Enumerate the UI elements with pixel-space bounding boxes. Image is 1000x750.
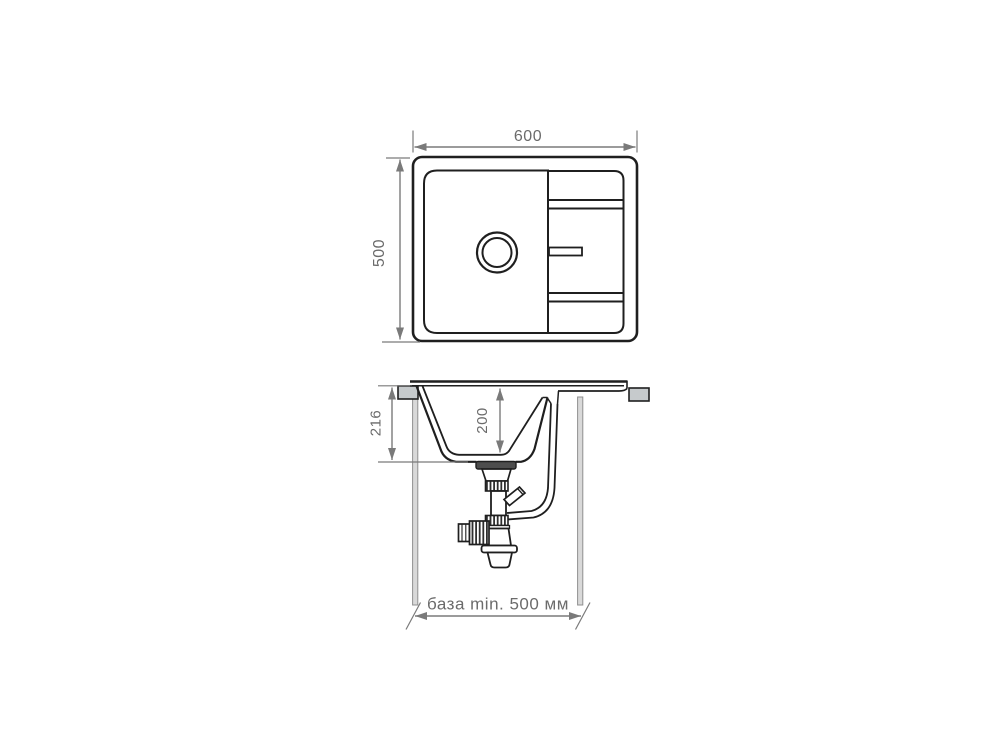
tailpipe xyxy=(491,491,506,516)
dim-cabinet-base: база min. 500 мм xyxy=(406,595,590,630)
dim-bowl-depth-label: 200 xyxy=(474,407,491,434)
outlet-nut xyxy=(470,521,490,545)
dim-depth-label: 500 xyxy=(371,239,388,267)
sink-rim xyxy=(410,381,627,392)
siphon-assembly xyxy=(459,462,526,568)
drawing-canvas: 600 500 xyxy=(0,0,1000,750)
outlet-pipe xyxy=(459,521,490,545)
dim-cabinet-base-label: база min. 500 мм xyxy=(427,595,569,614)
drainboard-channel-tab xyxy=(549,248,582,256)
drain-flange xyxy=(476,462,516,470)
strainer-body xyxy=(482,469,511,481)
cabinet-wall-left xyxy=(413,399,418,605)
dim-width-label: 600 xyxy=(514,128,542,145)
dim-overall-depth-label: 216 xyxy=(368,410,385,437)
threaded-coupling-top xyxy=(486,481,509,491)
trap-cup xyxy=(488,553,513,568)
top-view: 600 500 xyxy=(371,128,637,342)
dim-width: 600 xyxy=(413,128,637,153)
mounting-clip-right xyxy=(629,388,649,401)
drainboard-underside xyxy=(558,389,627,392)
cabinet-wall-right xyxy=(578,397,583,605)
technical-drawing: 600 500 xyxy=(0,0,1000,750)
sink-bowl-outline xyxy=(424,171,548,334)
mounting-clip-left xyxy=(398,386,418,399)
dim-bowl-depth: 200 xyxy=(474,389,500,453)
trap-shoulder xyxy=(482,546,518,553)
side-view: 216 200 база min. 500 мм xyxy=(368,381,650,630)
